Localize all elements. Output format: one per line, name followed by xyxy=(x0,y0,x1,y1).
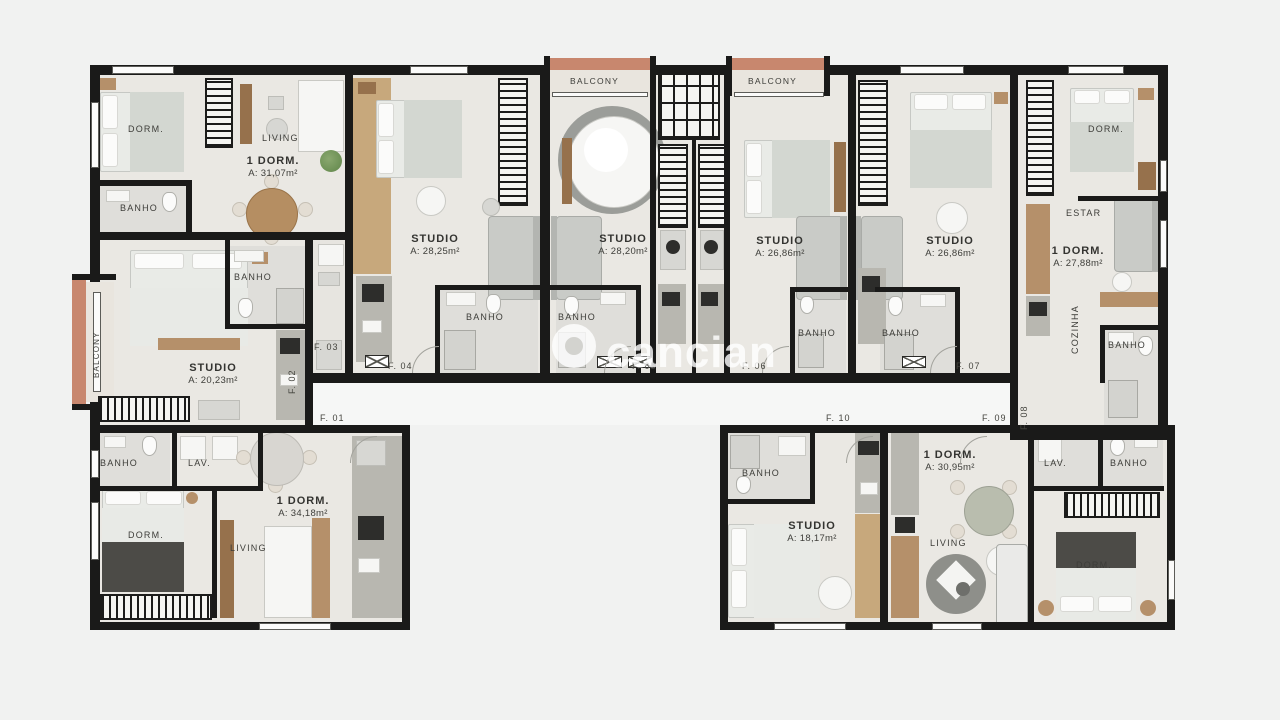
window xyxy=(259,623,331,630)
hall-cabinet xyxy=(318,272,340,286)
wall xyxy=(790,287,795,375)
unit-area-f03: A: 31,07m² xyxy=(228,168,318,179)
wardrobe xyxy=(1026,80,1054,196)
table xyxy=(1100,292,1158,307)
window xyxy=(112,66,174,74)
wall xyxy=(345,65,353,373)
balcony-label-top2: BALCONY xyxy=(748,76,797,86)
dining-chair xyxy=(232,202,247,217)
toilet xyxy=(162,192,177,212)
unit-type-f04: STUDIO xyxy=(390,233,480,245)
sofa xyxy=(298,80,344,152)
cooktop xyxy=(662,292,680,306)
pillow xyxy=(1104,90,1130,104)
wall xyxy=(1010,65,1018,440)
pillow xyxy=(746,143,762,177)
plant xyxy=(320,150,342,172)
cooktop xyxy=(1029,302,1047,316)
wood-panel xyxy=(312,518,330,618)
room-label-lav-f09: LAV. xyxy=(1044,458,1067,468)
cooktop xyxy=(895,517,915,533)
sofa xyxy=(264,526,312,618)
pillow xyxy=(746,180,762,214)
wall xyxy=(186,180,192,238)
bath-vanity xyxy=(920,294,946,307)
unit-area-f09: A: 30,95m² xyxy=(905,462,995,473)
unit-area-f02: A: 20,23m² xyxy=(168,375,258,386)
balcony-label-top1: BALCONY xyxy=(570,76,619,86)
watermark-text: cancian xyxy=(606,328,777,378)
shower xyxy=(444,330,476,370)
wall xyxy=(435,285,540,290)
room-label-banho-f04: BANHO xyxy=(466,312,504,322)
room-label-estar-f08: ESTAR xyxy=(1066,208,1101,218)
sink xyxy=(358,558,380,573)
door-label-f08: F. 08 xyxy=(1019,388,1029,430)
wardrobe xyxy=(858,80,888,206)
room-label-dorm-f03: DORM. xyxy=(128,124,164,134)
room-label-banho-f10: BANHO xyxy=(742,468,780,478)
room-label-banho-f01: BANHO xyxy=(100,458,138,468)
wall xyxy=(810,433,815,499)
cooktop xyxy=(362,284,384,302)
wall xyxy=(100,486,263,491)
toilet xyxy=(800,296,814,314)
room-label-living-f03: LIVING xyxy=(262,133,299,143)
sink xyxy=(362,320,382,333)
coffee-table xyxy=(268,96,284,110)
room-label-banho-f09: BANHO xyxy=(1110,458,1148,468)
room-label-lav-f01: LAV. xyxy=(188,458,211,468)
balcony-glass-top1 xyxy=(552,92,648,97)
headboard-panel xyxy=(562,138,572,204)
dining-chair xyxy=(302,450,317,465)
room-label-banho-f06: BANHO xyxy=(798,328,836,338)
unit-area-f01: A: 34,18m² xyxy=(258,508,348,519)
duct-box xyxy=(902,356,926,368)
pillow xyxy=(134,253,184,269)
pillow xyxy=(731,570,747,608)
wall xyxy=(225,240,230,328)
dining-chair xyxy=(950,524,965,539)
room-label-banho-f08: BANHO xyxy=(1108,340,1146,350)
bath-vanity xyxy=(778,436,806,456)
wall xyxy=(728,499,815,504)
rug-dot xyxy=(956,582,970,596)
tv-panel xyxy=(834,142,846,212)
cooktop xyxy=(358,516,384,540)
tv-panel xyxy=(220,520,234,618)
wall xyxy=(225,324,307,329)
wall xyxy=(720,425,728,630)
wall xyxy=(550,285,640,290)
dining-table xyxy=(964,486,1014,536)
shower xyxy=(276,288,304,324)
unit-type-f06: STUDIO xyxy=(735,235,825,247)
wall xyxy=(1098,433,1103,488)
pillow xyxy=(378,140,394,174)
blanket xyxy=(102,542,184,592)
window xyxy=(900,66,964,74)
cooktop xyxy=(701,292,718,306)
chair xyxy=(1112,272,1132,292)
wall xyxy=(650,65,656,373)
wall xyxy=(100,180,192,186)
balcony-label-left: BALCONY xyxy=(92,308,101,378)
toilet xyxy=(142,436,157,456)
floor-plan: 1 DORM. A: 31,07m² STUDIO A: 20,23m² STU… xyxy=(0,0,1280,720)
duvet xyxy=(404,100,462,178)
wardrobe xyxy=(498,78,528,206)
wall xyxy=(848,65,856,373)
room-label-banho-f03: BANHO xyxy=(120,203,158,213)
wardrobe xyxy=(658,144,688,228)
sink xyxy=(106,190,130,202)
door-label-f04: F. 04 xyxy=(388,361,413,371)
room-label-banho-f05: BANHO xyxy=(558,312,596,322)
unit-area-f05: A: 28,20m² xyxy=(578,246,668,257)
unit-type-f03: 1 DORM. xyxy=(228,155,318,167)
wall xyxy=(720,425,1175,433)
stair-core xyxy=(658,68,720,140)
pillow xyxy=(378,103,394,137)
duvet xyxy=(1056,568,1136,620)
duvet xyxy=(772,140,830,218)
pillow xyxy=(731,528,747,566)
toilet xyxy=(888,296,903,316)
pillow xyxy=(1060,596,1094,612)
room-label-dorm-f08: DORM. xyxy=(1088,124,1124,134)
wardrobe xyxy=(205,78,233,148)
room-label-living-f01: LIVING xyxy=(230,543,267,553)
room-label-dorm-f09: DORM. xyxy=(1076,560,1112,570)
balcony-rail-left xyxy=(72,280,86,404)
balcony-glass-top2 xyxy=(734,92,824,97)
desk xyxy=(198,400,240,420)
armchair xyxy=(936,202,968,234)
sofa xyxy=(996,544,1028,628)
door-label-f01: F. 01 xyxy=(320,413,345,423)
wall xyxy=(824,56,830,96)
unit-area-f08: A: 27,88m² xyxy=(1033,258,1123,269)
window xyxy=(1168,560,1175,600)
floor-corridor xyxy=(313,383,1018,425)
wood-floor-strip xyxy=(855,514,883,618)
wall xyxy=(90,622,410,630)
pillow xyxy=(102,133,118,167)
window xyxy=(91,102,99,168)
balcony-rail-top2 xyxy=(730,58,828,70)
window xyxy=(1068,66,1124,74)
room-label-cozinha-f08: COZINHA xyxy=(1070,298,1080,354)
armchair xyxy=(416,186,446,216)
nightstand xyxy=(358,82,376,94)
unit-type-f08: 1 DORM. xyxy=(1033,245,1123,257)
wall xyxy=(212,491,217,618)
window xyxy=(1160,220,1167,268)
unit-type-f09: 1 DORM. xyxy=(905,449,995,461)
duct-box xyxy=(365,355,389,368)
unit-type-f02: STUDIO xyxy=(168,362,258,374)
wall xyxy=(1078,196,1158,201)
toilet xyxy=(486,294,501,314)
nightstand xyxy=(994,92,1008,104)
toilet xyxy=(1110,438,1125,456)
desk xyxy=(1138,162,1156,190)
wardrobe xyxy=(100,594,212,620)
window xyxy=(91,502,99,560)
unit-area-f10: A: 18,17m² xyxy=(767,533,857,544)
unit-type-f05: STUDIO xyxy=(578,233,668,245)
dining-chair xyxy=(236,450,251,465)
dining-chair xyxy=(298,202,313,217)
pillow xyxy=(105,491,141,505)
desk-chair xyxy=(666,240,680,254)
pillow xyxy=(1098,596,1132,612)
pillow xyxy=(1074,90,1100,104)
bath-vanity xyxy=(600,292,626,305)
wall xyxy=(258,433,263,486)
unit-type-f01: 1 DORM. xyxy=(258,495,348,507)
pillow xyxy=(146,491,182,505)
toilet xyxy=(736,476,751,494)
window xyxy=(410,66,468,74)
door-label-f02: F. 02 xyxy=(287,352,297,394)
bath-vanity xyxy=(234,250,264,262)
window xyxy=(932,623,982,630)
door-label-f03: F. 03 xyxy=(314,342,339,352)
wall xyxy=(875,287,960,292)
unit-area-f06: A: 26,86m² xyxy=(735,248,825,259)
toilet xyxy=(238,298,253,318)
wall xyxy=(880,433,888,622)
shower xyxy=(730,435,760,469)
unit-area-f04: A: 28,25m² xyxy=(390,246,480,257)
pouf xyxy=(818,576,852,610)
hall-cabinet xyxy=(318,244,344,266)
wall xyxy=(90,65,100,282)
wall xyxy=(90,425,410,433)
unit-type-f10: STUDIO xyxy=(767,520,857,532)
balcony-rail-top1 xyxy=(548,58,652,70)
room-label-living-f09: LIVING xyxy=(930,538,967,548)
wall xyxy=(1028,433,1034,628)
door-label-f07: F. 07 xyxy=(956,361,981,371)
wall xyxy=(1100,325,1105,383)
wardrobe xyxy=(1064,492,1160,518)
wall xyxy=(540,65,550,373)
wall xyxy=(790,287,848,292)
nightstand xyxy=(1138,88,1154,100)
kitchen-counter xyxy=(891,433,919,515)
kitchen-cabinet xyxy=(891,536,919,618)
washer xyxy=(212,436,238,460)
wall xyxy=(172,433,177,488)
pillow xyxy=(914,94,948,110)
washer xyxy=(180,436,206,460)
shower xyxy=(1108,380,1138,418)
wall xyxy=(402,425,410,630)
pillow xyxy=(102,95,118,129)
window xyxy=(1160,160,1167,192)
door-label-f10: F. 10 xyxy=(826,413,851,423)
duvet xyxy=(910,130,992,188)
sink xyxy=(104,436,126,448)
wardrobe xyxy=(98,396,190,422)
nightstand xyxy=(100,78,116,90)
round-bed-pillows xyxy=(584,128,628,172)
nightstand xyxy=(1140,600,1156,616)
door-label-f09: F. 09 xyxy=(982,413,1007,423)
watermark-logo xyxy=(552,324,596,368)
room-label-dorm-f01: DORM. xyxy=(128,530,164,540)
window xyxy=(774,623,846,630)
wardrobe xyxy=(698,144,726,228)
side-table xyxy=(482,198,500,216)
tv-panel xyxy=(240,84,252,144)
desk-chair xyxy=(704,240,718,254)
nightstand xyxy=(1038,600,1054,616)
shower xyxy=(798,334,824,368)
bed-bench xyxy=(158,338,240,350)
bath-vanity xyxy=(446,292,476,306)
unit-type-f07: STUDIO xyxy=(905,235,995,247)
wall xyxy=(1100,325,1158,330)
wall xyxy=(90,232,353,240)
lamp xyxy=(186,492,198,504)
sink xyxy=(860,482,878,495)
pillow xyxy=(952,94,986,110)
dining-chair xyxy=(950,480,965,495)
wall xyxy=(652,65,730,75)
wall xyxy=(1034,486,1164,491)
window xyxy=(91,450,99,478)
room-label-banho-f02: BANHO xyxy=(234,272,272,282)
unit-area-f07: A: 26,86m² xyxy=(905,248,995,259)
wall xyxy=(724,65,730,373)
room-label-banho-f07: BANHO xyxy=(882,328,920,338)
